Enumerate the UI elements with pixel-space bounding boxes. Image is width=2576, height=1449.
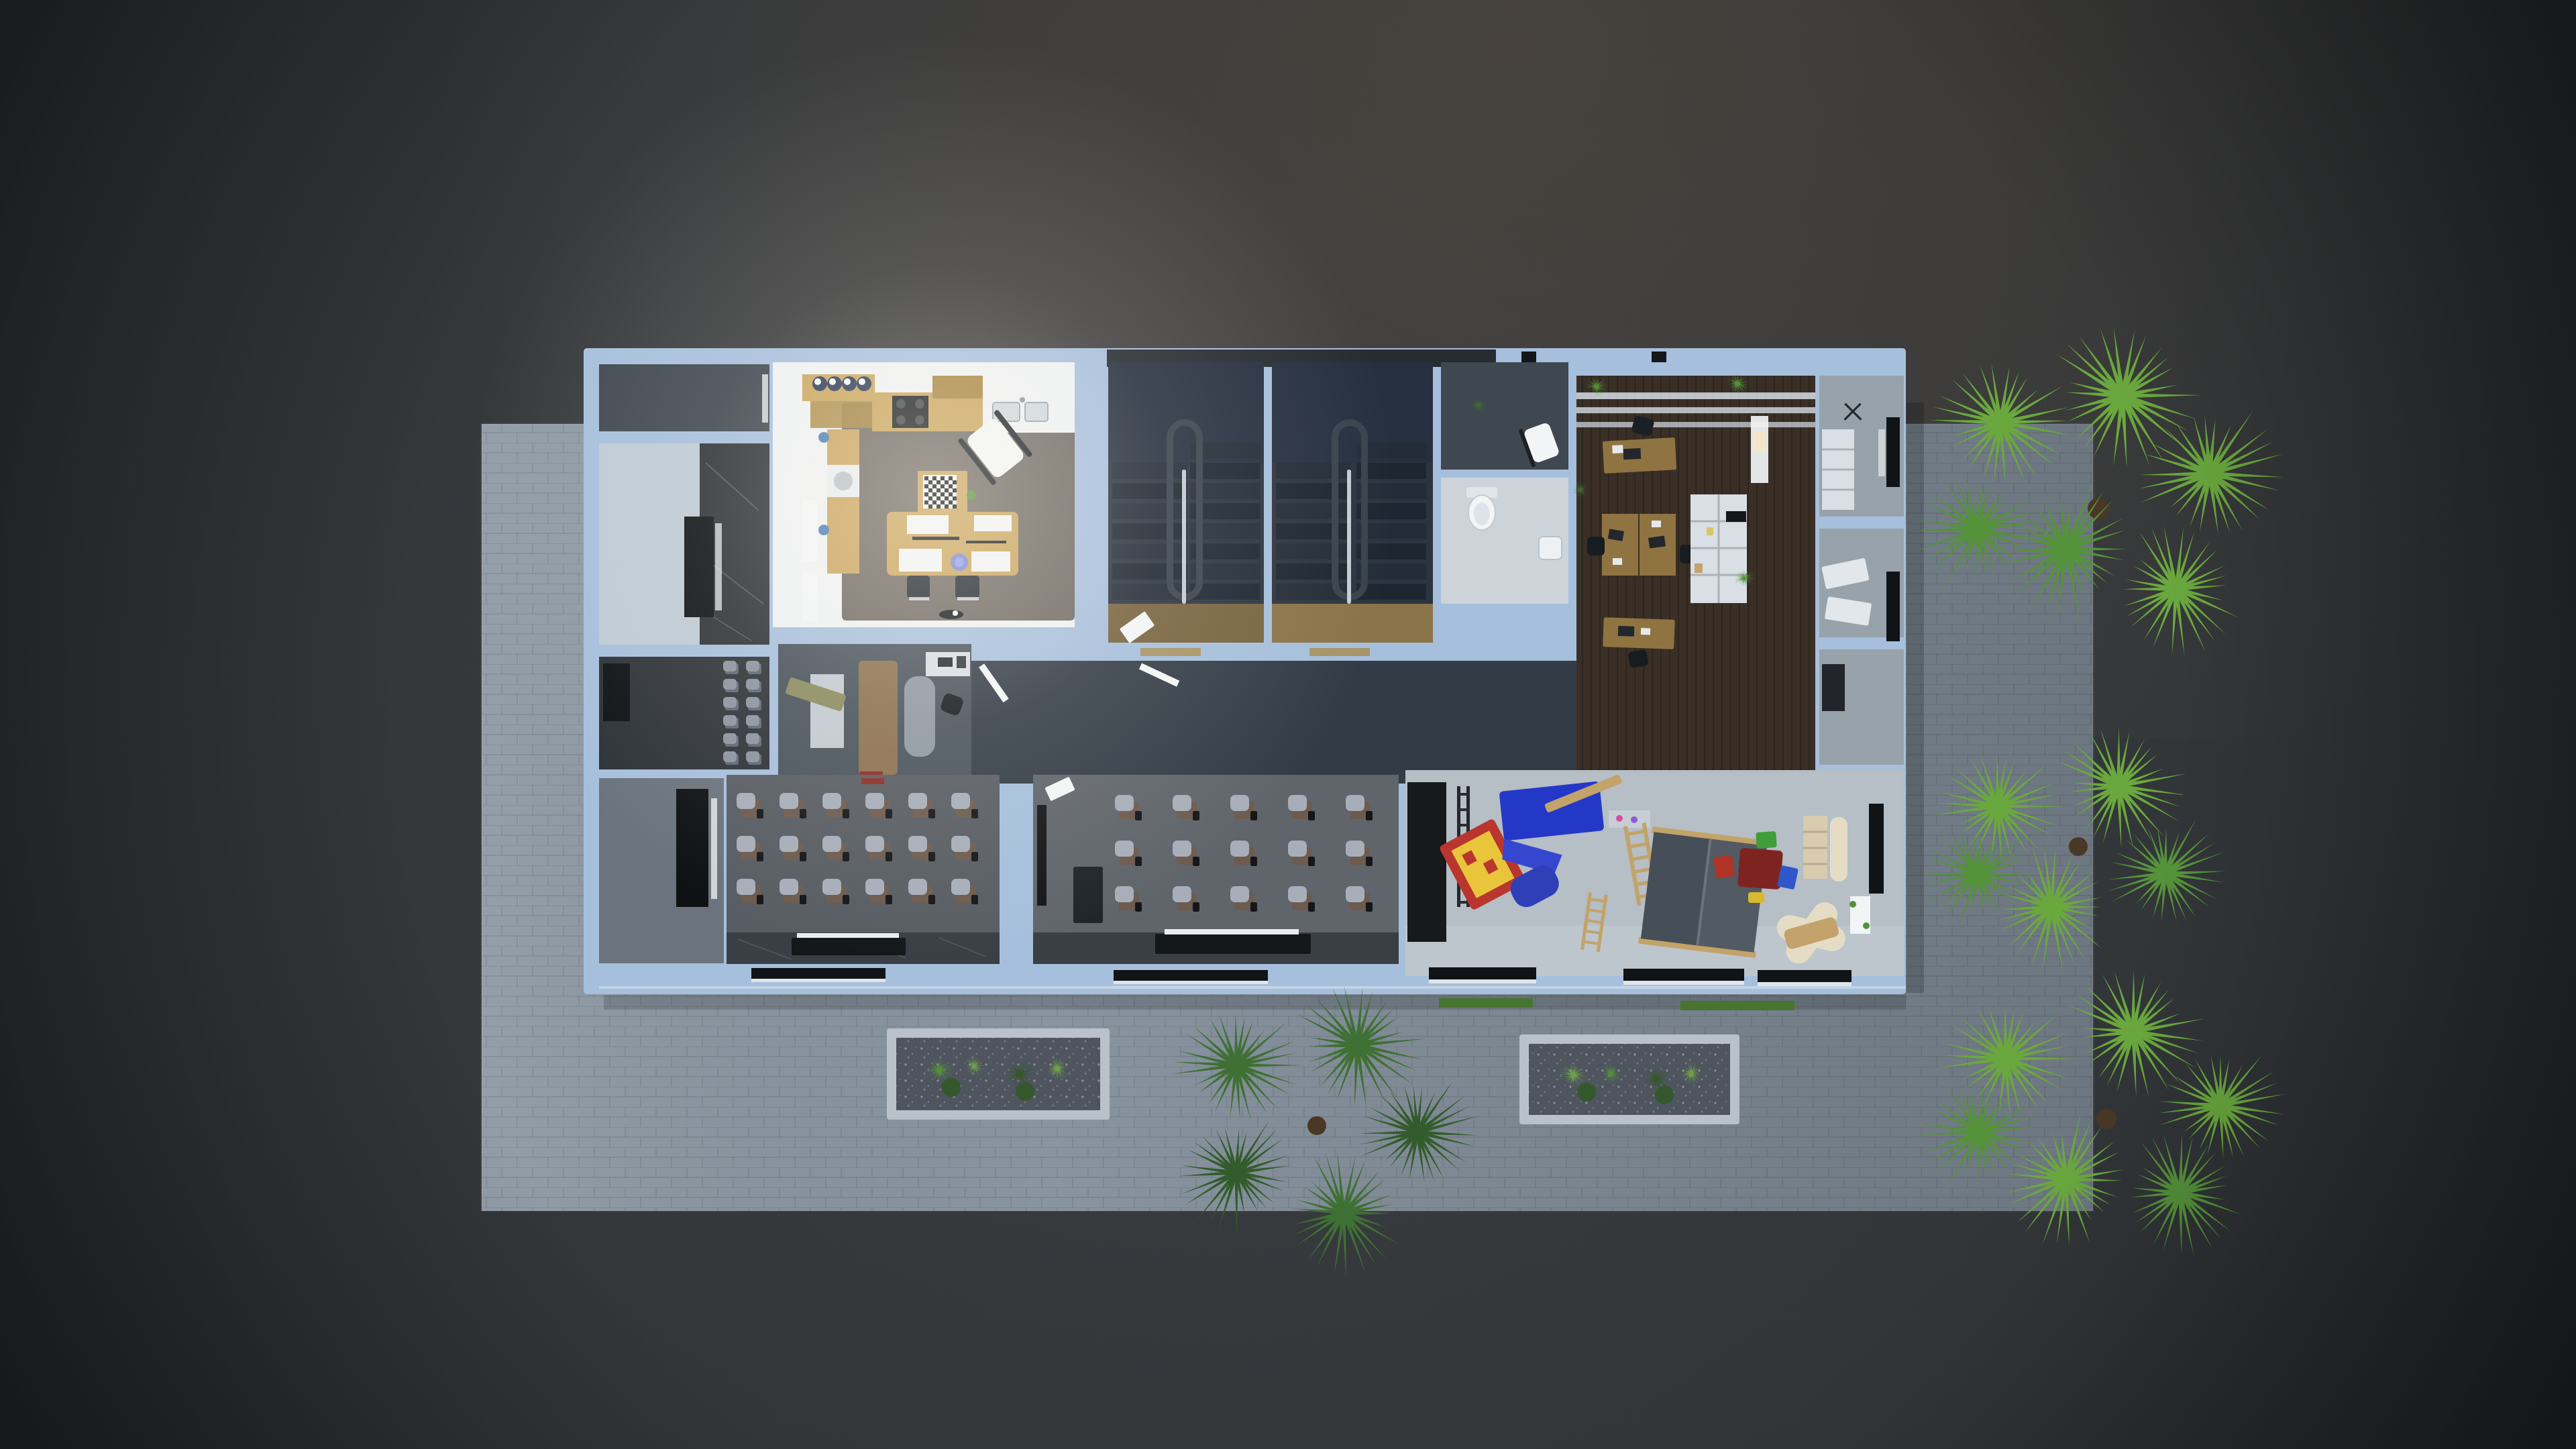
- vignette: [0, 0, 2576, 1449]
- scene-canvas: Top-down dollhouse render of a single bu…: [0, 0, 2576, 1449]
- floorplan-render: Top-down dollhouse render of a single bu…: [0, 0, 2576, 1449]
